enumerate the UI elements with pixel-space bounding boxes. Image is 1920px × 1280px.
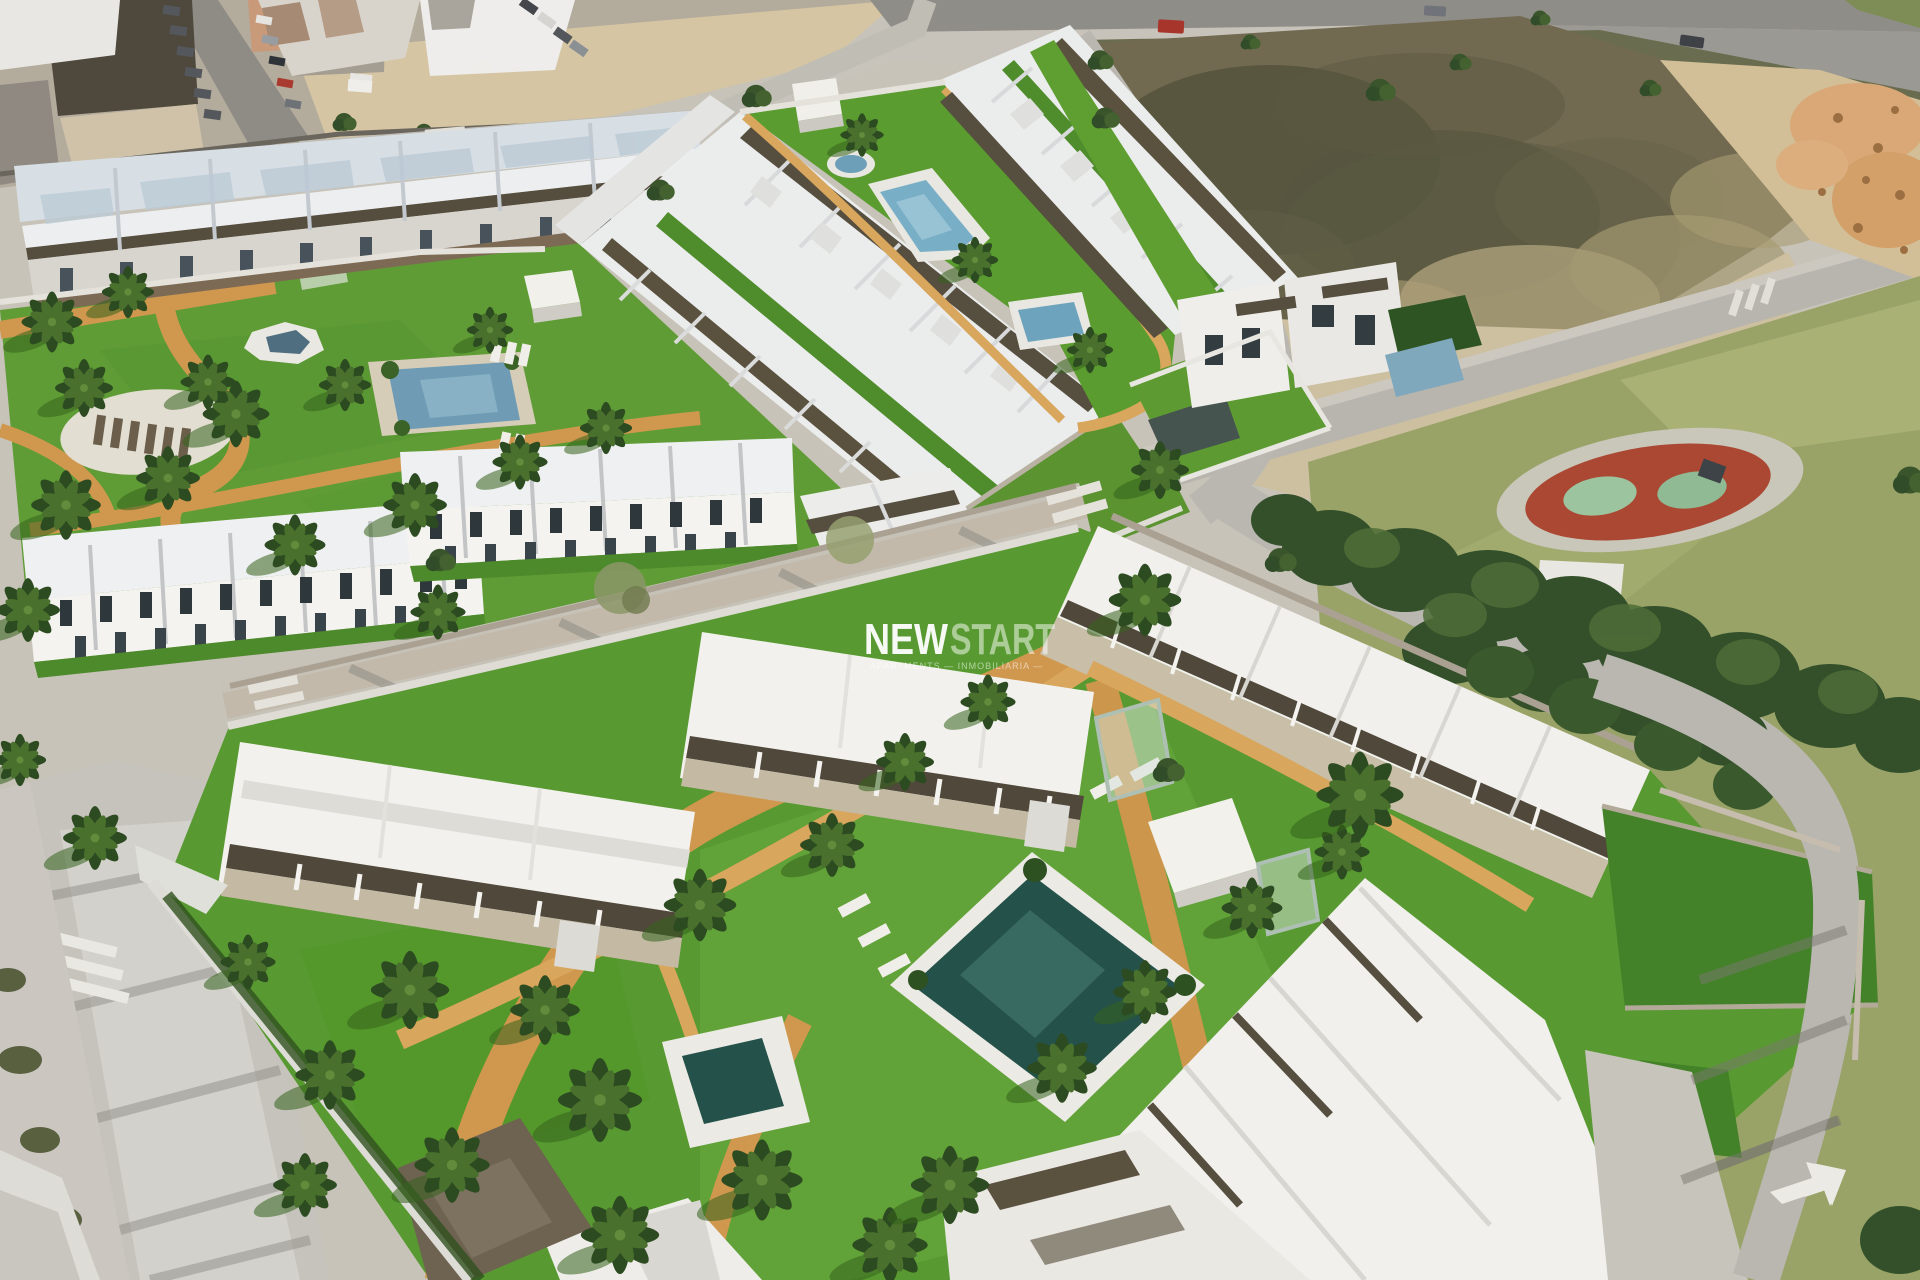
svg-text:START: START [950,615,1055,664]
svg-text:NEW: NEW [864,615,948,664]
svg-text:APARTMENTS — INMOBILIARIA —: APARTMENTS — INMOBILIARIA — [870,661,1043,671]
